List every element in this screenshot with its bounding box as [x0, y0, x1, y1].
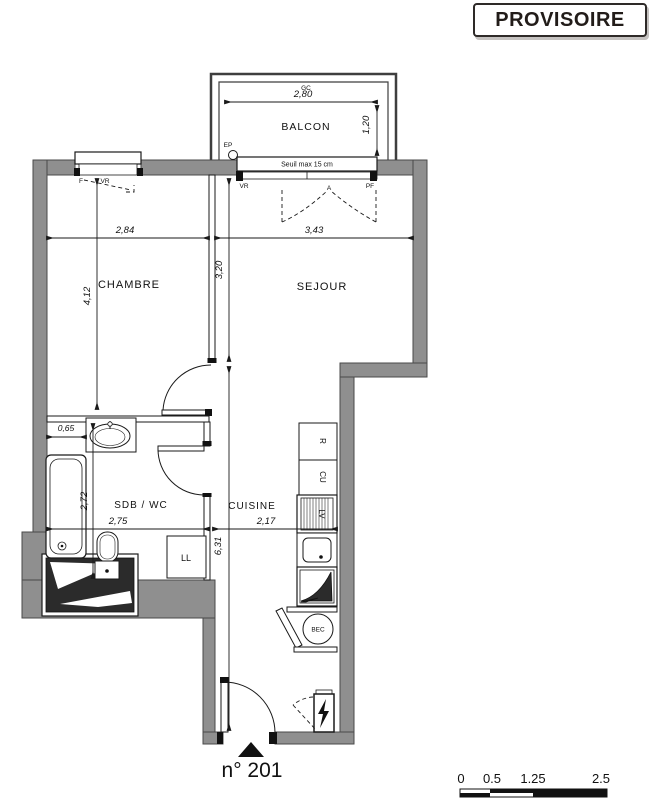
provisoire-stamp-label: PROVISOIRE [495, 9, 624, 32]
entrance-door [217, 677, 277, 757]
scale-tick-1: 0.5 [483, 771, 501, 786]
dim-sdb-length: 2,72 [79, 491, 90, 511]
chambre-door-arc [163, 365, 211, 410]
balcony-door: Seuil max 15 cm VR PF A [236, 157, 377, 222]
fridge-box: R [299, 423, 337, 460]
wall-segment [340, 363, 427, 377]
wall-segment [275, 732, 354, 744]
dim-tub-width: 0,65 [58, 423, 75, 433]
duct-shaft [42, 554, 138, 616]
sdb-door-leaf [158, 446, 204, 451]
lv-label: LV [317, 509, 326, 519]
dim-corridor-length: 6,31 [213, 537, 224, 556]
entrance-triangle-marker [238, 742, 264, 757]
unit-number: n° 201 [222, 759, 283, 782]
scale-tick-3: 2.5 [592, 771, 610, 786]
dim-chambre-length: 4,12 [82, 286, 93, 305]
scale-tick-2: 1.25 [520, 771, 545, 786]
sdb-door-arc [158, 449, 204, 495]
door-jamb [370, 171, 377, 181]
chambre-window: F VR [74, 152, 143, 192]
dim-chambre-width: 2,84 [115, 225, 135, 236]
dim-balcon-width: 2,80 [293, 89, 313, 100]
provisoire-stamp: PROVISOIRE [473, 3, 647, 37]
dimensions: 2,84 3,43 4,12 3,20 6,31 0,65 2,72 2,75 … [47, 179, 413, 730]
kitchen-fixtures: R CU LV [297, 423, 337, 606]
ep-label: EP [224, 142, 233, 149]
washbasin [86, 418, 136, 452]
entrance-door-arc [224, 682, 275, 733]
a-label: A [327, 185, 332, 192]
toilet [95, 532, 119, 579]
dim-cuisine-width: 2,17 [256, 516, 276, 527]
ll-label: LL [181, 553, 191, 563]
vr-label-sejour: VR [239, 183, 248, 190]
floor-plan-drawing: GC 2,80 1,20 BALCON EP Seuil max 15 cm V… [0, 0, 654, 800]
ep-drain [229, 151, 238, 160]
dim-sejour-length: 3,20 [214, 260, 225, 279]
room-label-cuisine: CUISINE [228, 501, 276, 512]
door-jamb [236, 171, 243, 181]
cu-label: CU [318, 471, 327, 483]
electrical-panel [293, 690, 334, 732]
f-label: F [79, 178, 83, 185]
window-swing-dashed [126, 185, 134, 192]
door-swing-dashed [282, 191, 327, 222]
door-swing-dashed [331, 191, 376, 222]
dim-sdb-width: 2,75 [108, 516, 128, 527]
wall-segment [141, 160, 237, 175]
entrance-door-leaf [221, 682, 228, 732]
panel-swing-dashed [293, 697, 313, 705]
pf-label: PF [366, 183, 374, 190]
wall-segment [33, 160, 47, 532]
balcony: GC 2,80 1,20 BALCON EP [211, 74, 396, 160]
seuil-label: Seuil max 15 cm [281, 162, 333, 169]
chambre-door-leaf [162, 410, 211, 415]
r-label: R [318, 438, 327, 444]
bec-label: BEC [311, 627, 325, 634]
hob-box: CU [299, 460, 337, 495]
room-label-sejour: SEJOUR [297, 281, 348, 293]
scale-bar: 0 0.5 1.25 2.5 [457, 771, 610, 797]
walls [22, 160, 427, 744]
washing-machine-box: LL [167, 536, 206, 578]
wall-segment [203, 618, 215, 732]
dim-sejour-width: 3,43 [305, 225, 324, 236]
room-label-balcon: BALCON [281, 121, 330, 133]
kitchen-sink [297, 533, 337, 567]
bec-enclosure: BEC [276, 607, 337, 652]
dim-balcon-depth: 1,20 [361, 115, 372, 134]
panel-swing-dashed [293, 705, 316, 730]
scale-tick-0: 0 [457, 771, 464, 786]
floor-plan-page: GC 2,80 1,20 BALCON EP Seuil max 15 cm V… [0, 0, 654, 800]
dishwasher-box: LV [297, 495, 337, 533]
vr-label-chambre: VR [100, 178, 109, 185]
room-label-sdb: SDB / WC [114, 500, 168, 511]
room-label-chambre: CHAMBRE [98, 279, 160, 291]
wall-segment [340, 377, 354, 744]
wall-segment [413, 160, 427, 377]
kitchen-duct-box [297, 567, 337, 606]
